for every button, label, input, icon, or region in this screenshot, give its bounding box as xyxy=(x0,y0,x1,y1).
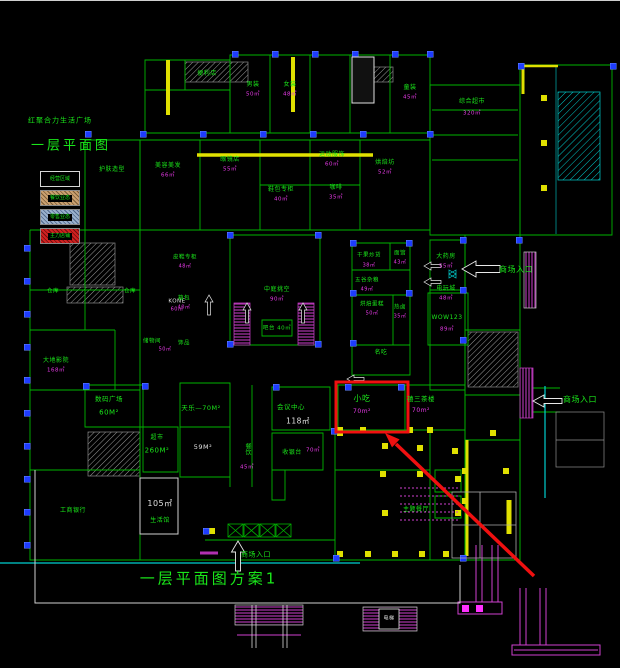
room-area: 50㎡ xyxy=(366,312,379,317)
room-name: 眼镜店 xyxy=(220,157,240,163)
room-area: 55㎡ xyxy=(223,167,237,173)
room-name: 箱包 xyxy=(178,296,190,302)
room-name: 鞋包专柜 xyxy=(268,187,294,193)
room-area: 60M² xyxy=(99,410,119,417)
room-area: 43㎡ xyxy=(394,261,407,266)
cad-floorplan-screenshot: 红聚合力生活广场 一层平面图 一层平面图方案1 经营区域 餐饮业态 零售业态 主… xyxy=(0,0,620,668)
room-area: 105㎡ xyxy=(147,500,172,508)
room-area: 45㎡ xyxy=(240,465,254,471)
room-name: 面馆 xyxy=(394,251,406,257)
room-area: 90㎡ xyxy=(270,297,284,303)
room-area: 35㎡ xyxy=(329,195,343,201)
room-name: 综合超市 xyxy=(459,99,485,105)
room-name: 美容美发 xyxy=(155,163,181,169)
room-name: 大地影院 xyxy=(43,358,69,364)
room-area: 40㎡ xyxy=(274,197,288,203)
room-name: 禧三茶楼 xyxy=(407,396,435,403)
room-name: 工商银行 xyxy=(60,508,86,514)
room-name: 大药房 xyxy=(436,254,456,260)
room-name: 五谷杂粮 xyxy=(355,278,379,284)
room-name: 天乐—70M² xyxy=(181,405,221,412)
highlight-shop-name: 小吃 xyxy=(354,395,371,403)
room-name: 女装 xyxy=(283,82,296,88)
room-name: 皮鞋专柜 xyxy=(173,255,197,261)
room-area: 48㎡ xyxy=(439,296,453,302)
room-area: 70m² xyxy=(412,408,430,414)
room-name: 饰品 xyxy=(178,341,190,347)
room-name: 烘焙坊 xyxy=(375,160,395,166)
room-name: 超市 xyxy=(150,435,163,441)
label-layer: 商场入口商场入口商场入口小吃70m²禧三茶楼70m²天乐—70M²59M²餐饮4… xyxy=(0,0,620,668)
room-name: 干果炒货 xyxy=(357,253,381,259)
atrium-label: 中庭挑空 xyxy=(264,287,290,293)
room-name: 生活馆 xyxy=(150,518,170,524)
room-name: 咖啡 xyxy=(329,185,342,191)
room-area: 118㎡ xyxy=(286,417,310,425)
room-area: 320㎡ xyxy=(463,111,481,117)
room-area: 48㎡ xyxy=(283,92,297,98)
room-name: 名吃 xyxy=(374,350,387,356)
room-name: 仓库 xyxy=(47,289,59,295)
room-area: 52㎡ xyxy=(378,170,392,176)
room-area: 60㎡ xyxy=(325,162,339,168)
room-name: WOW123 xyxy=(431,315,462,321)
room-area: 55㎡ xyxy=(439,264,453,270)
room-area: 66㎡ xyxy=(161,173,175,179)
room-name: 数码广场 xyxy=(95,396,123,403)
highlight-shop-area: 70m² xyxy=(353,409,371,415)
room-area: 48㎡ xyxy=(179,265,192,270)
room-area: 35㎡ xyxy=(394,315,407,320)
room-area: 168㎡ xyxy=(47,368,65,374)
room-area: 59M² xyxy=(194,444,213,451)
room-name: 运动服饰 xyxy=(319,152,345,158)
room-name: 储物间 xyxy=(143,339,161,345)
room-name: 护肤造型 xyxy=(99,167,125,173)
room-area: 40㎡ xyxy=(178,306,191,311)
entrance-label: 商场入口 xyxy=(563,396,597,404)
room-area: 49㎡ xyxy=(361,288,374,293)
room-name: 烘焙蛋糕 xyxy=(360,302,384,308)
room-name: 电玩城 xyxy=(436,286,456,292)
room-name: 热卤 xyxy=(394,305,406,311)
room-name: 吧台 40㎡ xyxy=(263,326,291,332)
room-name: 仓库 xyxy=(124,289,136,295)
room-name: 便利店 xyxy=(197,71,217,77)
room-area: 70㎡ xyxy=(306,448,320,454)
room-area: 89㎡ xyxy=(440,327,454,333)
room-name: 餐饮 xyxy=(244,443,250,455)
room-name: 主题餐厅 xyxy=(403,507,429,513)
room-area: 45㎡ xyxy=(403,95,417,101)
room-area: 50㎡ xyxy=(246,92,260,98)
room-area: 38㎡ xyxy=(363,264,376,269)
room-name: 男装 xyxy=(246,82,259,88)
room-name: 会议中心 xyxy=(277,404,305,411)
entrance-label: 商场入口 xyxy=(241,552,271,559)
room-area: 50㎡ xyxy=(159,348,172,353)
room-name: 童装 xyxy=(403,85,416,91)
room-name: 收银台 xyxy=(282,450,302,456)
entrance-label: 商场入口 xyxy=(499,266,533,274)
elevator-label: 电梯 xyxy=(383,617,394,622)
room-area: 260M² xyxy=(145,448,170,455)
